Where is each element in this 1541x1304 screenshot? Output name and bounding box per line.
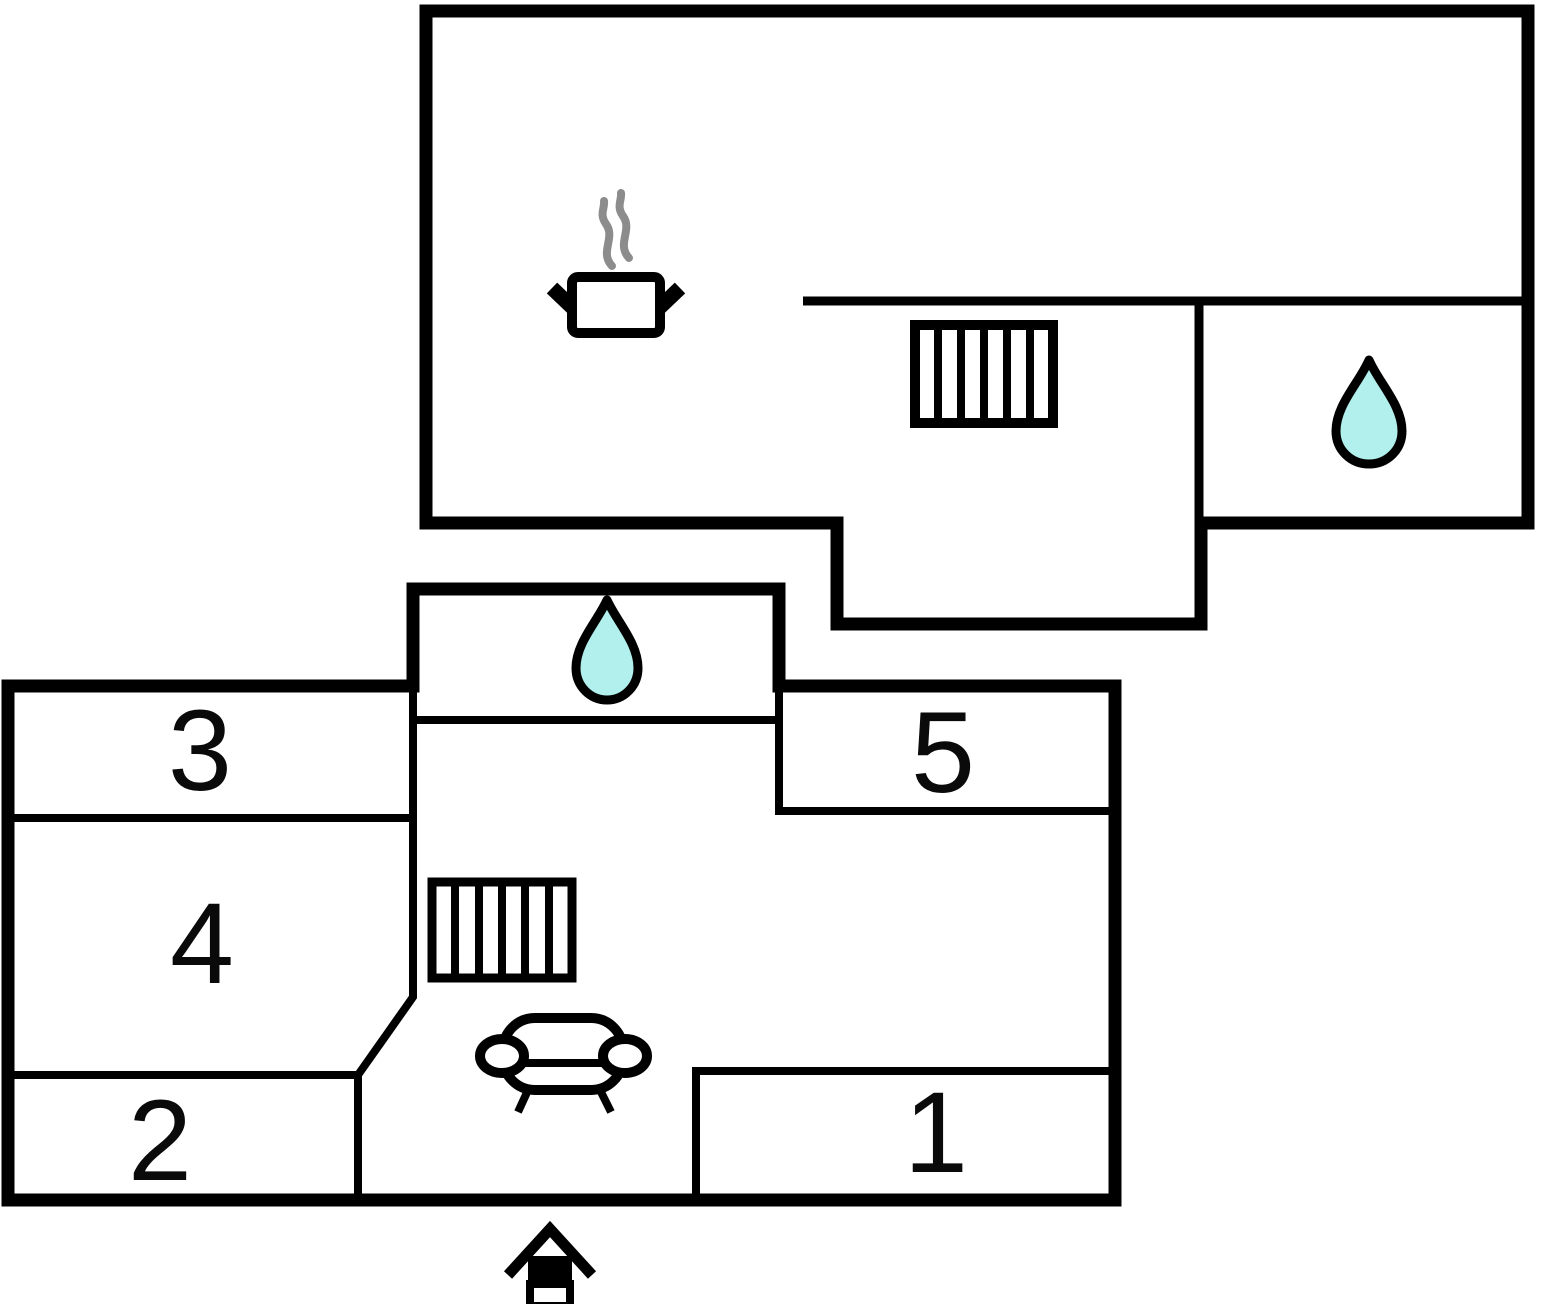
sofa-icon (480, 1018, 647, 1112)
entrance-filled-block (528, 1256, 572, 1282)
water-drop-icon (1336, 360, 1402, 464)
hall-partition-wall (358, 690, 413, 1200)
room-1-label: 1 (904, 1069, 968, 1197)
room-5-label: 5 (911, 689, 975, 817)
entrance-open-block (530, 1284, 570, 1304)
room1-walls (696, 1071, 1110, 1195)
water-drop-icon (576, 600, 638, 700)
steam-wave (603, 201, 612, 266)
pot-body (572, 277, 660, 333)
lower-floor: 3 4 2 5 1 (8, 589, 1115, 1205)
stairs-icon (432, 882, 572, 978)
stairs-icon (915, 325, 1053, 423)
room-2-label: 2 (128, 1077, 192, 1205)
sofa-armrest-left (480, 1039, 524, 1073)
entrance-arrow-icon (508, 1229, 592, 1304)
pot-with-steam-icon (552, 193, 680, 333)
floor-plan: 3 4 2 5 1 (0, 0, 1541, 1304)
room-3-label: 3 (168, 687, 232, 815)
upper-floor (426, 11, 1528, 624)
room-4-label: 4 (170, 880, 234, 1008)
floor-plan-canvas: 3 4 2 5 1 (0, 0, 1541, 1304)
steam-wave (620, 193, 629, 258)
sofa-armrest-right (603, 1039, 647, 1073)
